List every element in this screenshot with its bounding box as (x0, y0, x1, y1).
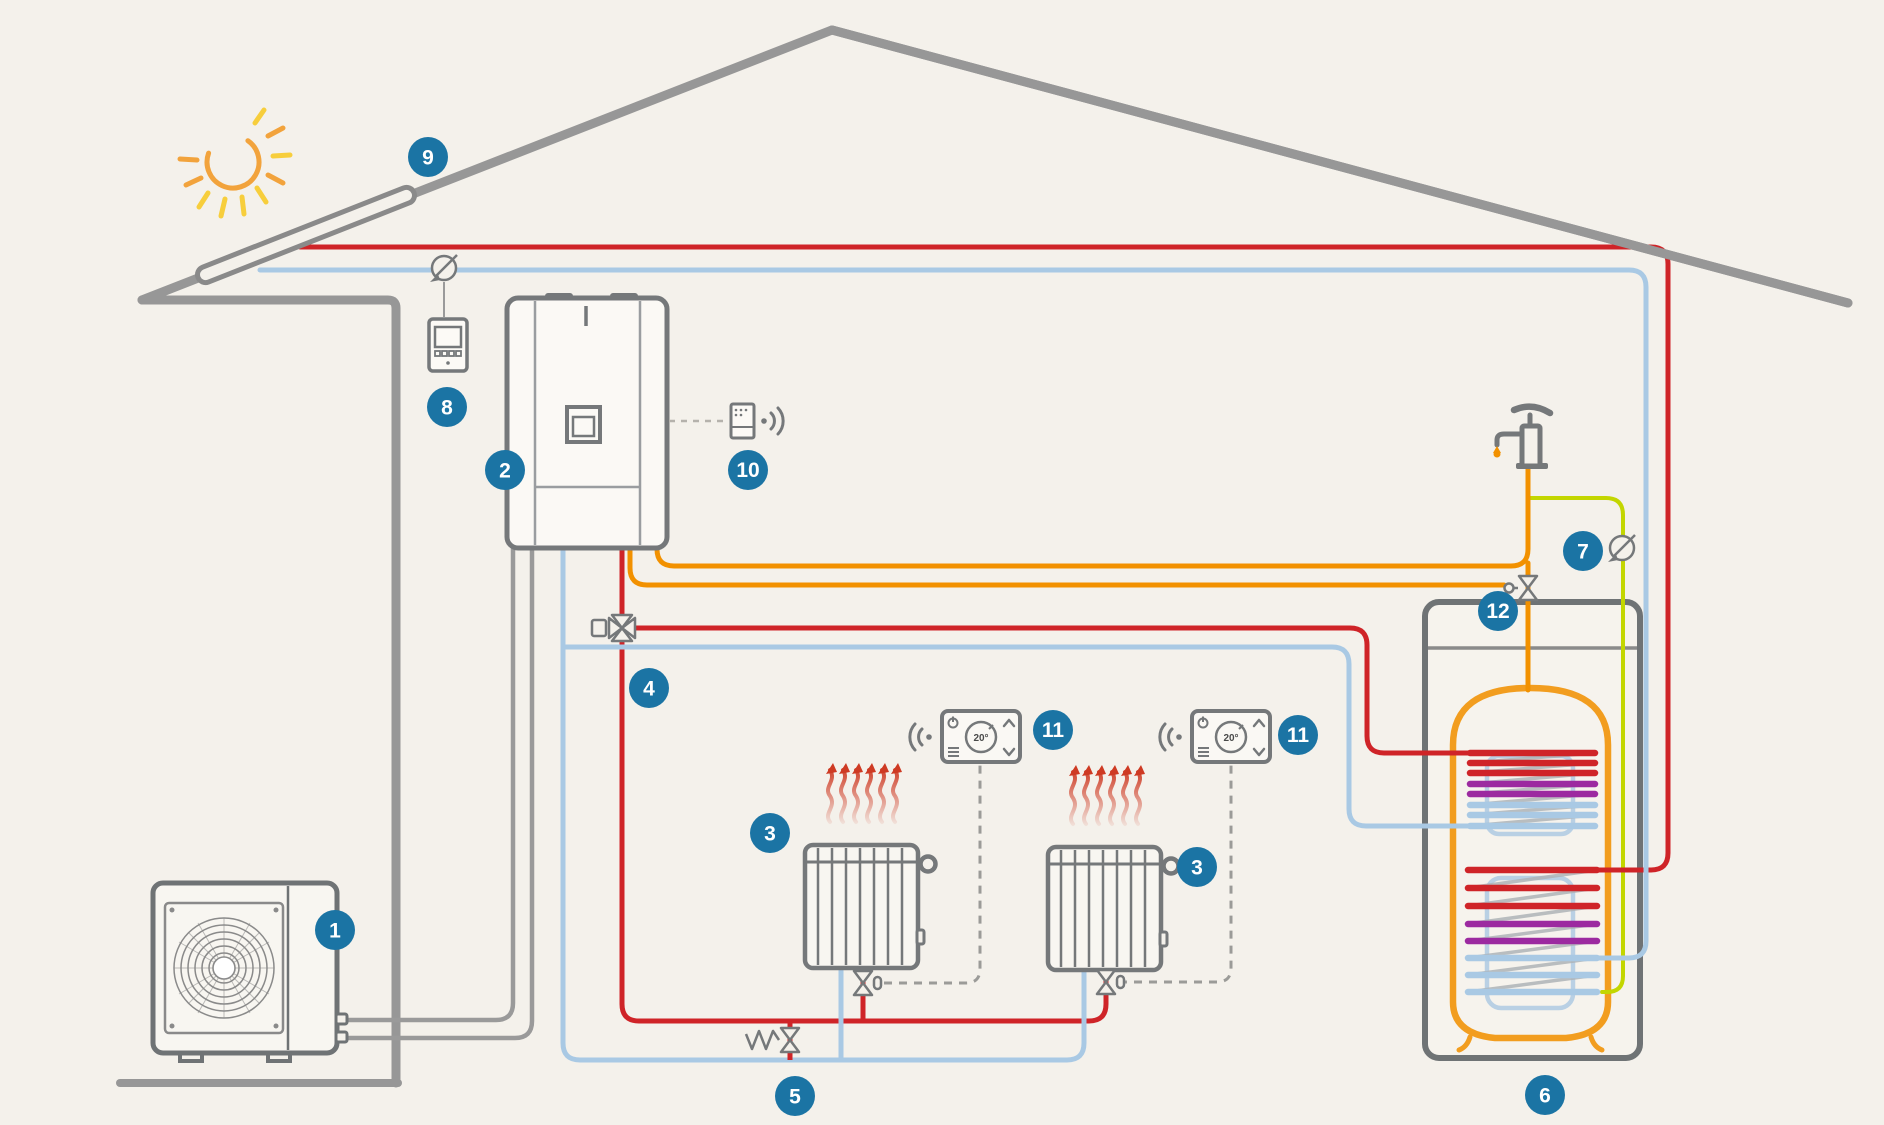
callout-dhw-valve: 12 (1478, 591, 1518, 631)
fan-icon (174, 918, 274, 1018)
callout-radiator-1: 3 (750, 813, 790, 853)
svg-text:9: 9 (422, 147, 434, 170)
svg-text:6: 6 (1539, 1085, 1551, 1108)
bypass-valve-icon (746, 1021, 799, 1060)
indoor-unit (507, 293, 667, 548)
heating-system-diagram: 20° 20° (0, 0, 1884, 1125)
refrigerant-pipes (345, 548, 532, 1038)
thermostat-temperature: 20° (1223, 733, 1238, 744)
mixing-valve-icon (592, 615, 635, 641)
dhw-pipes (630, 467, 1528, 690)
room-thermostat-1: 20° (942, 711, 1020, 762)
heat-waves-icon (1069, 765, 1145, 824)
callout-solar-controller: 8 (427, 387, 467, 427)
gateway-device (731, 404, 783, 438)
radiator-1 (805, 845, 936, 968)
wireless-signal-icon (910, 724, 932, 750)
svg-text:3: 3 (1191, 857, 1203, 880)
wireless-signal-icon (761, 408, 783, 434)
svg-text:11: 11 (1287, 724, 1310, 747)
svg-text:4: 4 (643, 678, 655, 701)
callout-outdoor-unit: 1 (315, 910, 355, 950)
roof-right-slope (832, 30, 1848, 303)
callout-bypass-valve: 5 (775, 1076, 815, 1116)
callout-dhw-sensor: 7 (1563, 531, 1603, 571)
svg-text:5: 5 (789, 1086, 801, 1109)
thermostat-temperature: 20° (973, 733, 988, 744)
svg-text:3: 3 (764, 823, 776, 846)
outdoor-unit (153, 883, 347, 1061)
radiator1-valve-icon (854, 971, 881, 995)
svg-text:7: 7 (1577, 541, 1589, 564)
callout-mixing-valve: 4 (629, 668, 669, 708)
dhw-temperature-sensor-icon (1608, 535, 1635, 562)
callout-thermostat-2: 11 (1278, 715, 1318, 755)
water-drop-icon (1493, 446, 1501, 458)
svg-text:12: 12 (1486, 600, 1509, 623)
heat-waves-icon (826, 763, 902, 822)
svg-text:10: 10 (736, 459, 759, 482)
water-tap-icon (1493, 407, 1550, 469)
svg-text:11: 11 (1042, 719, 1065, 742)
radiator-2 (1048, 847, 1179, 970)
callout-radiator-2: 3 (1177, 847, 1217, 887)
svg-text:1: 1 (329, 920, 341, 943)
callout-solar-collector: 9 (408, 137, 448, 177)
callout-thermostat-1: 11 (1033, 710, 1073, 750)
svg-text:2: 2 (499, 460, 511, 483)
heating-return-pipe (563, 548, 1084, 1060)
callout-indoor-unit: 2 (485, 450, 525, 490)
callout-storage-tank: 6 (1525, 1075, 1565, 1115)
wireless-signal-icon (1160, 724, 1182, 750)
room-thermostat-2: 20° (1192, 711, 1270, 762)
collector-temperature-sensor-icon (430, 255, 457, 282)
sun-icon (180, 110, 290, 216)
svg-text:8: 8 (441, 397, 453, 420)
callout-gateway: 10 (728, 450, 768, 490)
solar-controller-device (429, 319, 467, 371)
radiator2-valve-icon (1097, 970, 1124, 994)
